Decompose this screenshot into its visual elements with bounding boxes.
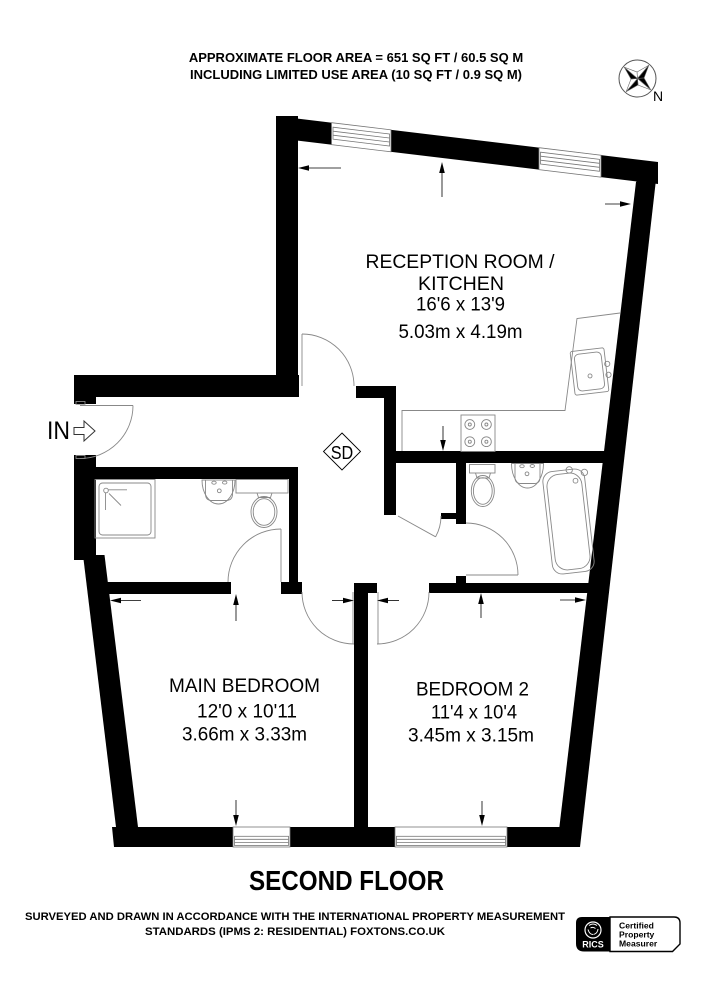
- svg-text:5.03m x 4.19m: 5.03m x 4.19m: [399, 322, 523, 343]
- svg-text:STANDARDS (IPMS 2: RESIDENTIAL: STANDARDS (IPMS 2: RESIDENTIAL) FOXTONS.…: [145, 926, 445, 938]
- svg-text:SURVEYED AND DRAWN IN ACCORDAN: SURVEYED AND DRAWN IN ACCORDANCE WITH TH…: [25, 911, 565, 923]
- svg-text:MAIN BEDROOM: MAIN BEDROOM: [169, 676, 320, 697]
- svg-text:SECOND FLOOR: SECOND FLOOR: [249, 865, 444, 896]
- svg-text:16'6 x 13'9: 16'6 x 13'9: [416, 295, 505, 316]
- svg-text:BEDROOM 2: BEDROOM 2: [416, 680, 529, 701]
- svg-text:RECEPTION ROOM /: RECEPTION ROOM /: [366, 252, 556, 273]
- svg-text:3.66m x 3.33m: 3.66m x 3.33m: [182, 725, 307, 746]
- svg-text:IN: IN: [47, 417, 70, 445]
- svg-text:KITCHEN: KITCHEN: [418, 274, 504, 295]
- svg-text:RICS: RICS: [582, 940, 604, 950]
- svg-text:APPROXIMATE FLOOR AREA = 651 S: APPROXIMATE FLOOR AREA = 651 SQ FT / 60.…: [189, 50, 523, 65]
- svg-text:INCLUDING LIMITED USE AREA (10: INCLUDING LIMITED USE AREA (10 SQ FT / 0…: [190, 67, 522, 82]
- svg-text:12'0 x 10'11: 12'0 x 10'11: [197, 702, 297, 723]
- svg-text:N: N: [653, 88, 663, 104]
- svg-text:11'4 x 10'4: 11'4 x 10'4: [431, 703, 517, 724]
- svg-text:Measurer: Measurer: [619, 939, 658, 949]
- svg-text:3.45m x 3.15m: 3.45m x 3.15m: [408, 726, 534, 747]
- svg-text:SD: SD: [331, 443, 354, 463]
